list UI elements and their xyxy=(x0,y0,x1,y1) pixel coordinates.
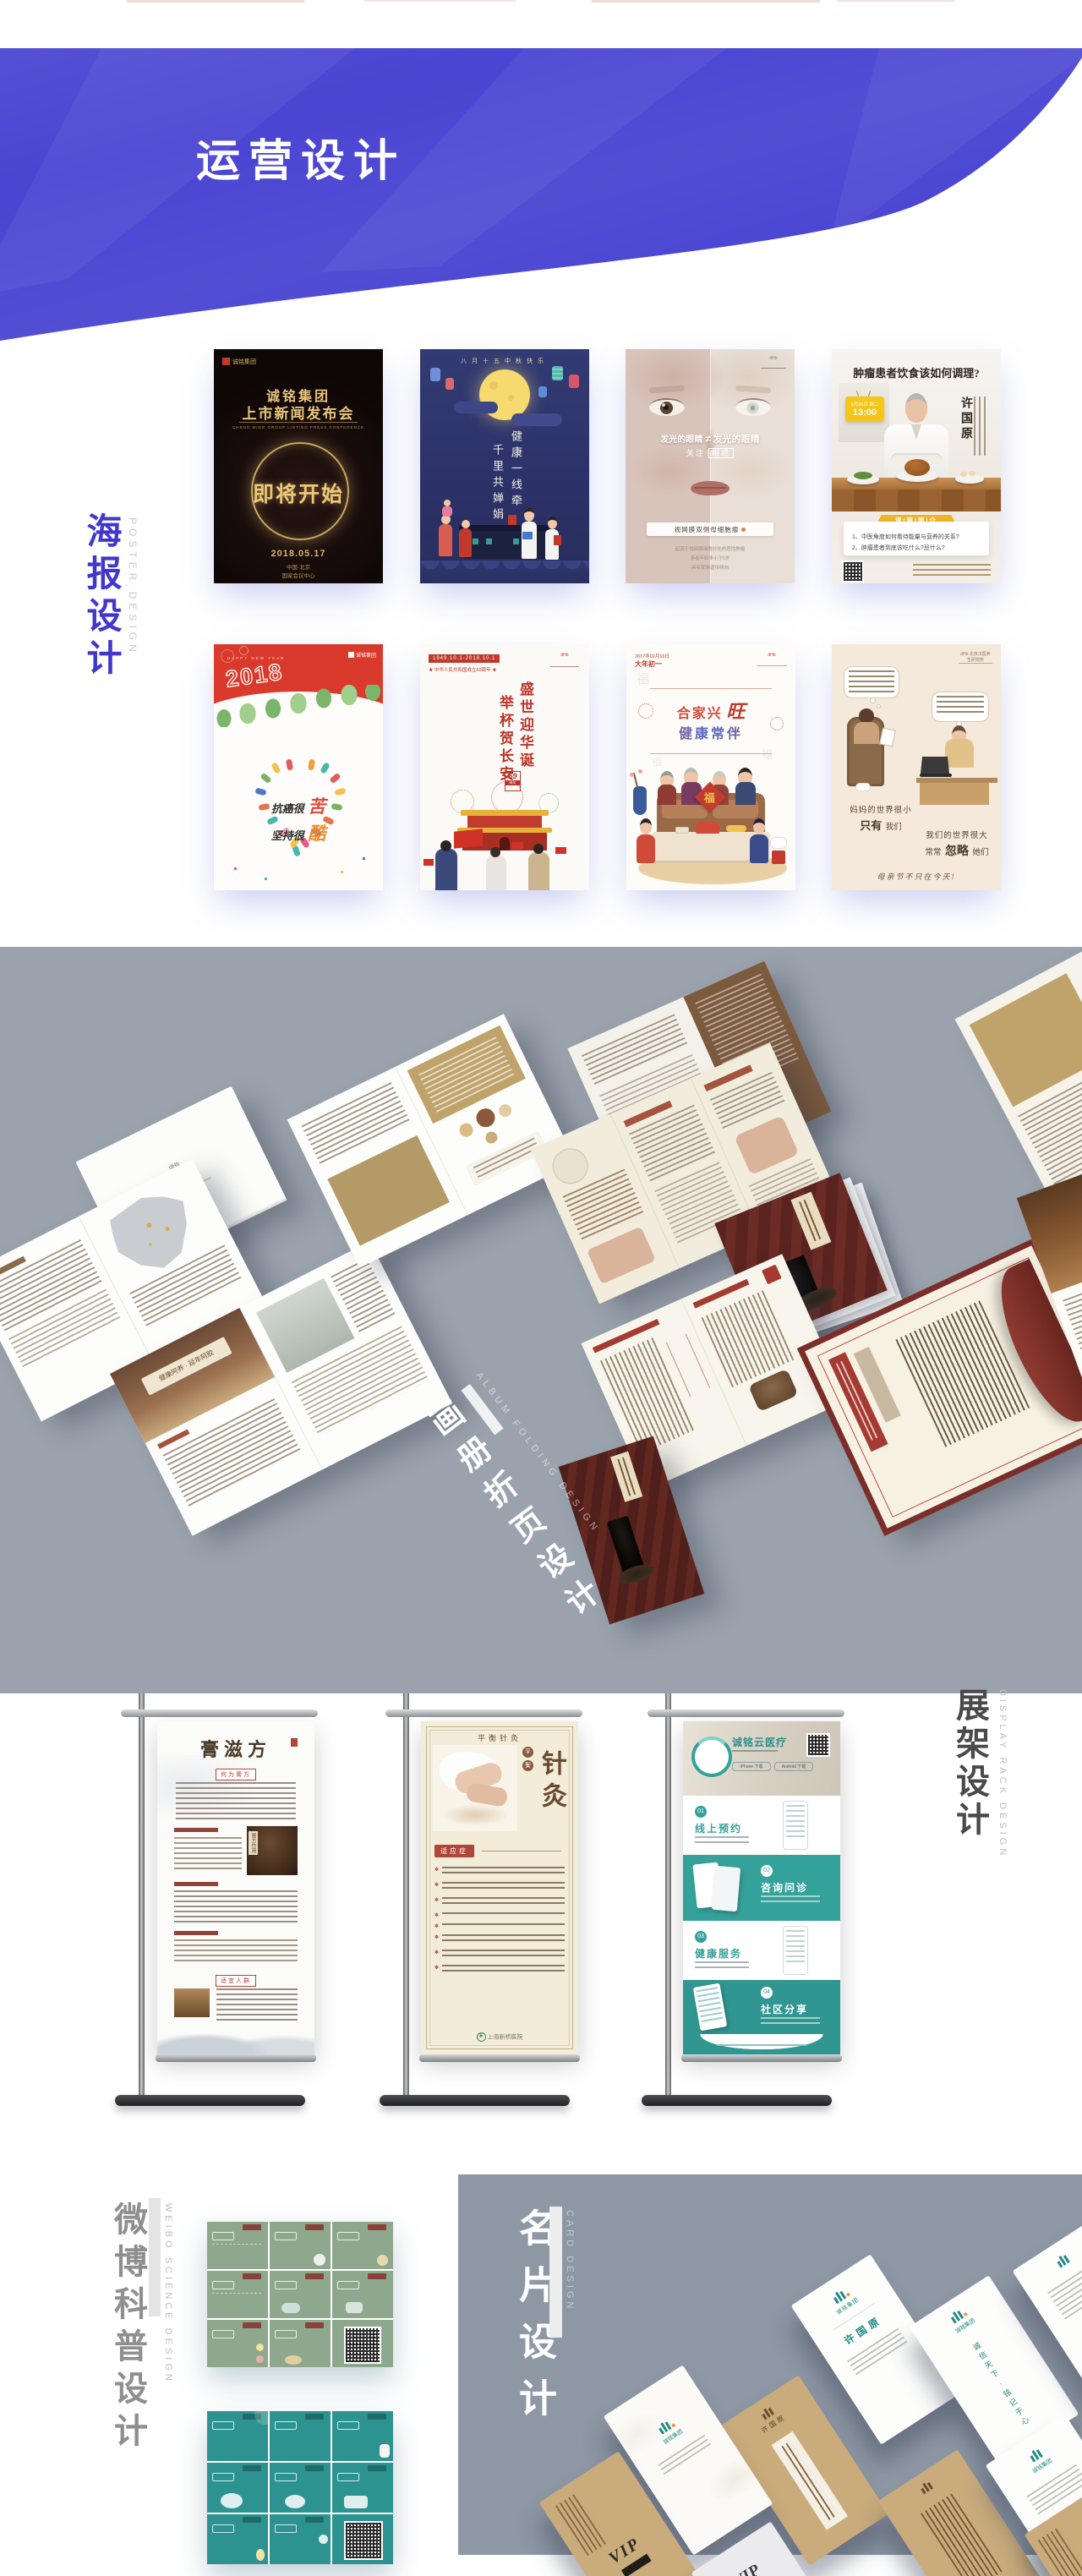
banner1-subhead2 xyxy=(174,1882,218,1886)
headline-left: 发光的眼睛 xyxy=(660,435,702,445)
poster1-logo-text: 诚铭集团 xyxy=(232,358,256,366)
stand-crossbar xyxy=(385,1709,582,1717)
red-book xyxy=(554,535,561,545)
step3-number: 03 xyxy=(695,1931,707,1943)
page-title: 运营设计 xyxy=(196,125,416,189)
course-list-panel: 1、中医角度如何看待能量与营养的关系? 2、肿瘤患者到底该吃什么?忌什么? xyxy=(844,522,989,555)
blue-book xyxy=(522,532,533,539)
badge-number: 69 xyxy=(505,772,520,780)
poster6-logo: dHb xyxy=(550,653,579,667)
poster1-city: 中国·北京 xyxy=(214,562,383,571)
firework-deco xyxy=(638,703,653,719)
lantern-blue2 xyxy=(538,386,547,397)
window xyxy=(513,539,519,544)
poster8-right-text: 我们的世界很大 常常 忽略 她们 xyxy=(916,829,997,859)
poster-family-health: 福 福 福 2017年02月16日 大年初一 dHb 合家兴 旺 健康常伴 xyxy=(626,644,795,890)
banner1-photo: 膏方作用 xyxy=(247,1826,298,1875)
qr-code xyxy=(842,561,864,582)
banner1-tag1-row: 何为膏方 xyxy=(174,1765,298,1780)
card-section-label-en: CARD DESIGN xyxy=(565,2210,575,2311)
seal xyxy=(291,1738,298,1747)
banner2-photo xyxy=(433,1745,517,1831)
banner3-qr xyxy=(806,1733,830,1757)
man-at-desk xyxy=(920,725,996,810)
card-label-bar xyxy=(549,2207,562,2338)
divider xyxy=(239,422,358,423)
window xyxy=(486,539,492,544)
thought-bubble xyxy=(844,666,899,698)
girl-figure xyxy=(637,818,655,866)
people-heart xyxy=(214,644,383,890)
poster4-title: 肿瘤患者饮食该如何调理? xyxy=(832,364,1001,380)
lantern-teal xyxy=(552,366,563,380)
right-line2c: 她们 xyxy=(972,849,988,857)
step2-number: 02 xyxy=(761,1865,773,1877)
tv-time: 13:00 xyxy=(845,407,884,418)
lantern-pink xyxy=(569,375,579,388)
weibo-grid-sage xyxy=(207,2222,393,2367)
rollup-banner-cloud-medical: 诚铭云医疗 iPhone 下载 Android 下载 01 线上预约 xyxy=(683,1721,840,2054)
banner2-main-title: 针灸 xyxy=(533,1750,570,1814)
tv-date: 9月26日 周二 xyxy=(845,397,884,407)
course-q1: 1、中医角度如何看待能量与营养的关系? xyxy=(852,533,981,541)
banner1-subhead3 xyxy=(174,1931,218,1935)
poster-mid-autumn: 八月十五中秋快乐 健康一线牵 千里共婵娟 xyxy=(420,349,589,583)
banner3-sec4: 04 社区分享 xyxy=(683,1980,840,2034)
figure-doctor-male xyxy=(522,508,537,559)
banner1-intro xyxy=(176,1782,296,1819)
poster1-logo: 诚铭集团 xyxy=(222,358,256,366)
logo-mark xyxy=(222,358,230,365)
tv-badge: 9月26日 周二 13:00 xyxy=(845,397,884,422)
figure-mother xyxy=(459,520,472,559)
step4-number: 04 xyxy=(761,1987,773,1999)
fu-char: 福 xyxy=(704,789,715,805)
course-q2: 2、肿瘤患者到底该吃什么?忌什么? xyxy=(852,544,981,552)
slogan2: 坚持很 xyxy=(271,829,304,842)
plate-veggies xyxy=(847,474,879,484)
banner3-btn-iphone: iPhone 下载 xyxy=(732,1762,771,1771)
poster7-date: 2017年02月16日 大年初一 xyxy=(635,653,669,669)
poster-diet-lecture: 肿瘤患者饮食该如何调理? 9月26日 周二 13:00 许国原 xyxy=(832,349,1001,583)
title1-accent: 旺 xyxy=(726,701,745,722)
boy-figure xyxy=(750,818,768,866)
dog-on-stool xyxy=(770,837,787,866)
banner1-tag1: 何为膏方 xyxy=(216,1769,256,1780)
banner1-text2 xyxy=(174,1890,298,1924)
display-section-label: 展架设计 xyxy=(945,1687,994,1840)
banner1-text3 xyxy=(174,1939,298,1965)
date-line2: 大年初一 xyxy=(635,659,669,669)
banner2-tag-text: 适应症 xyxy=(440,1847,468,1855)
window xyxy=(473,539,478,544)
table-front xyxy=(832,489,1001,511)
poster3-subline: 关注 眼癌 xyxy=(626,447,795,458)
mom-in-chair xyxy=(847,708,906,790)
card-slogan: 诚信天下·铭记于心 xyxy=(970,2340,1034,2430)
banner1-text1 xyxy=(174,1837,242,1873)
dates-text: 1949.10.1-2018.10.1 xyxy=(433,656,495,661)
poster6-sub: ★ 中华人民共和国成立69周年 ★ xyxy=(429,666,497,673)
slogan1: 抗癌很 xyxy=(271,802,304,815)
banner1-small-photo xyxy=(174,1988,210,2017)
banner-section: 膏滋方 何为膏方 膏方作用 适宜人群 xyxy=(0,1693,1082,2173)
banner2-tag: 适应症 xyxy=(434,1845,474,1857)
banner1-photo-label: 膏方作用 xyxy=(249,1831,258,1855)
poster3-headline: 发光的眼睛 ≠ 发光的眼睛 xyxy=(626,432,795,446)
firework xyxy=(491,781,523,813)
poster1-venue: 国家会议中心 xyxy=(214,571,383,579)
sub-left: 关注 xyxy=(686,449,705,457)
lips xyxy=(691,481,730,495)
header-swoosh-shape xyxy=(0,0,1082,355)
banner3-footer-wave xyxy=(683,2034,840,2054)
fu-watermark3: 福 xyxy=(652,754,662,768)
poster8-logo: dHb 北京汉医养生研究所 xyxy=(959,651,992,664)
speaker-bio-lines xyxy=(974,397,986,456)
step4-title: 社区分享 xyxy=(761,2002,808,2016)
brochure-spread-tan xyxy=(287,1014,577,1267)
poster1-date: 2018.05.17 xyxy=(214,549,383,559)
poster5-slogan: 抗癌很 苦 坚持很 酷 xyxy=(214,793,383,845)
poster2-verse1: 健康一线牵 xyxy=(508,430,524,511)
banner3-hero: 诚铭云医疗 iPhone 下载 Android 下载 xyxy=(683,1721,840,1796)
eye-right-glowing xyxy=(735,398,771,416)
speech-bubble xyxy=(932,692,989,722)
banner1-tag2-row: 适宜人群 xyxy=(174,1972,298,1987)
step1-title: 线上预约 xyxy=(695,1821,742,1835)
poster-eye-cancer: 发光的眼睛 ≠ 发光的眼睛 关注 眼癌 视网膜双侧母细胞瘤 起源于视网膜细胞分化… xyxy=(626,349,795,583)
banner3-btn-android: Android 下载 xyxy=(774,1762,813,1771)
portfolio-page: 运营设计 海报设计 POSTER DESIGN 诚铭集团 诚铭集团 上市新闻发布… xyxy=(0,0,1082,2576)
stand-bottom-bar xyxy=(156,2054,316,2062)
poster6-calligraphy1: 盛世迎华诞 xyxy=(515,681,536,770)
neq-symbol: ≠ xyxy=(705,433,711,445)
flag-large xyxy=(454,829,483,849)
poster-mothers-day: dHb 北京汉医养生研究所 妈妈的世界很小 xyxy=(832,644,1001,890)
speaker-name: 许国原 xyxy=(957,397,974,442)
banner3-brand: 诚铭云医疗 xyxy=(732,1735,787,1749)
figure-child xyxy=(442,500,452,518)
left-line2: 我们 xyxy=(886,823,902,832)
hospital-name: 上海新桥医院 xyxy=(487,2034,522,2040)
sub-boxed: 眼癌 xyxy=(708,448,734,458)
poster3-diagnosis-box: 视网膜双侧母细胞瘤 xyxy=(647,522,773,536)
header-banner: 运营设计 xyxy=(0,0,1082,355)
dot-icon xyxy=(741,528,746,532)
card-vip: VIP xyxy=(730,2561,763,2576)
plate-dumplings xyxy=(955,474,984,484)
poster-press-conference: 诚铭集团 诚铭集团 上市新闻发布会 CHENG MING GROUP LISTI… xyxy=(214,349,383,583)
moon-crater xyxy=(508,395,514,401)
left-line2-bold: 只有 xyxy=(860,819,882,832)
firework-deco xyxy=(770,717,784,730)
banner2-hospital: ✚ 上海新桥医院 xyxy=(421,2032,578,2042)
eye-left xyxy=(649,398,685,416)
stand-crossbar xyxy=(648,1709,844,1717)
banner2-list: ✽ ✽ ✽ ✽ ✽ ✽ ✽ ✽ xyxy=(434,1862,565,1975)
stand-pole xyxy=(403,1693,409,2099)
figure-father xyxy=(439,515,452,559)
poster-section-label: 海报设计 xyxy=(76,512,128,681)
banner3-sec2: 02 咨询问诊 xyxy=(683,1855,840,1921)
stand-bottom-bar xyxy=(681,2054,842,2062)
plate-chicken xyxy=(896,469,938,482)
stand-base xyxy=(115,2095,305,2106)
right-line2: 常常 xyxy=(926,849,942,857)
vase xyxy=(633,786,647,815)
slogan1-accent: 苦 xyxy=(308,797,325,817)
weibo-grid-teal xyxy=(207,2411,393,2564)
date-line: 2017年02月16日 xyxy=(635,653,669,659)
poster-new-year: 2018 HAPPY NEW YEAR 诚铭集团 xyxy=(214,644,383,890)
poster3-note3: 具有家族遗传倾向 xyxy=(626,564,795,571)
moon-crater xyxy=(489,381,498,390)
banner3-sec1: 01 线上预约 xyxy=(683,1796,840,1855)
album-section: dHb 健康阿养 · 延年阿胶 xyxy=(0,947,1082,1693)
hospital-logo: dHb xyxy=(761,356,786,369)
step3-title: 健康服务 xyxy=(695,1946,742,1961)
poster2-top-text: 八月十五中秋快乐 xyxy=(420,357,589,365)
rollup-banner-acupuncture: 平衡针灸 平 衡 针灸 适应症 ✽ ✽ ✽ ✽ xyxy=(421,1721,578,2054)
footer-lines xyxy=(913,564,991,577)
banner1-ink-mountains xyxy=(157,2019,314,2054)
title1-main: 合家兴 xyxy=(677,707,723,721)
poster3-note1: 起源于视网膜细胞分化的恶性肿瘤 xyxy=(626,545,795,552)
step1-number: 01 xyxy=(695,1806,707,1818)
poster1-cta: 即将开始 xyxy=(214,478,383,508)
poster-national-day: 1949.10.1-2018.10.1 ★ 中华人民共和国成立69周年 ★ dH… xyxy=(420,644,589,890)
right-line2-bold: 忽略 xyxy=(945,845,969,858)
stand-pole xyxy=(139,1693,145,2099)
weibo-section-label: 微博科普设计 xyxy=(103,2201,152,2455)
crowd xyxy=(420,840,589,890)
cloud xyxy=(511,413,562,426)
right-line1: 我们的世界很大 xyxy=(916,829,997,840)
figure-doctor-female xyxy=(545,517,559,559)
poster8-left-text: 妈妈的世界很小 只有 我们 xyxy=(840,803,921,834)
poster-section-label-en: POSTER DESIGN xyxy=(127,517,139,656)
weibo-section-label-en: WEIBO SCIENCE DESIGN xyxy=(163,2203,173,2384)
diagnosis-text: 视网膜双侧母细胞瘤 xyxy=(675,525,740,534)
banner1-subhead1 xyxy=(174,1828,218,1832)
banner3-sec3: 03 健康服务 xyxy=(683,1921,840,1980)
poster1-title2: 上市新闻发布会 xyxy=(214,402,383,423)
fu-watermark: 福 xyxy=(637,670,649,687)
cloud xyxy=(454,402,498,413)
lantern-blue xyxy=(430,368,440,381)
stand-base xyxy=(642,2095,832,2106)
display-section-label-en: DISPLAY RACK DESIGN xyxy=(997,1689,1008,1858)
lantern-red xyxy=(445,378,454,390)
step2-title: 咨询问诊 xyxy=(761,1880,808,1895)
left-line1: 妈妈的世界很小 xyxy=(840,803,921,815)
banner2-top-label: 平衡针灸 xyxy=(421,1732,578,1743)
stand-crossbar xyxy=(121,1709,318,1717)
poster6-datebox: 1949.10.1-2018.10.1 xyxy=(429,654,500,663)
wave-border xyxy=(420,561,589,583)
weibo-label-bar xyxy=(149,2198,161,2316)
banner1-list xyxy=(216,1988,298,2022)
rollup-banner-gaozifang: 膏滋方 何为膏方 膏方作用 适宜人群 xyxy=(157,1721,314,2054)
headline-right: 发光的眼睛 xyxy=(713,435,760,445)
slogan2-accent: 酷 xyxy=(308,824,325,844)
stand-bottom-bar xyxy=(419,2054,580,2062)
stand-base xyxy=(380,2095,570,2106)
poster7-logo: dHb xyxy=(757,653,787,666)
poster1-subtitle-en: CHENG MING GROUP LISTING PRESS CONFERENC… xyxy=(214,425,383,429)
banner1-tag2: 适宜人群 xyxy=(216,1975,256,1987)
poster3-note2: 患者年龄多小于5岁 xyxy=(626,555,795,561)
poster8-footer: 母亲节不只在今天! xyxy=(832,871,1001,882)
hospital-cross-icon: ✚ xyxy=(477,2032,486,2042)
stand-pole xyxy=(665,1693,671,2099)
